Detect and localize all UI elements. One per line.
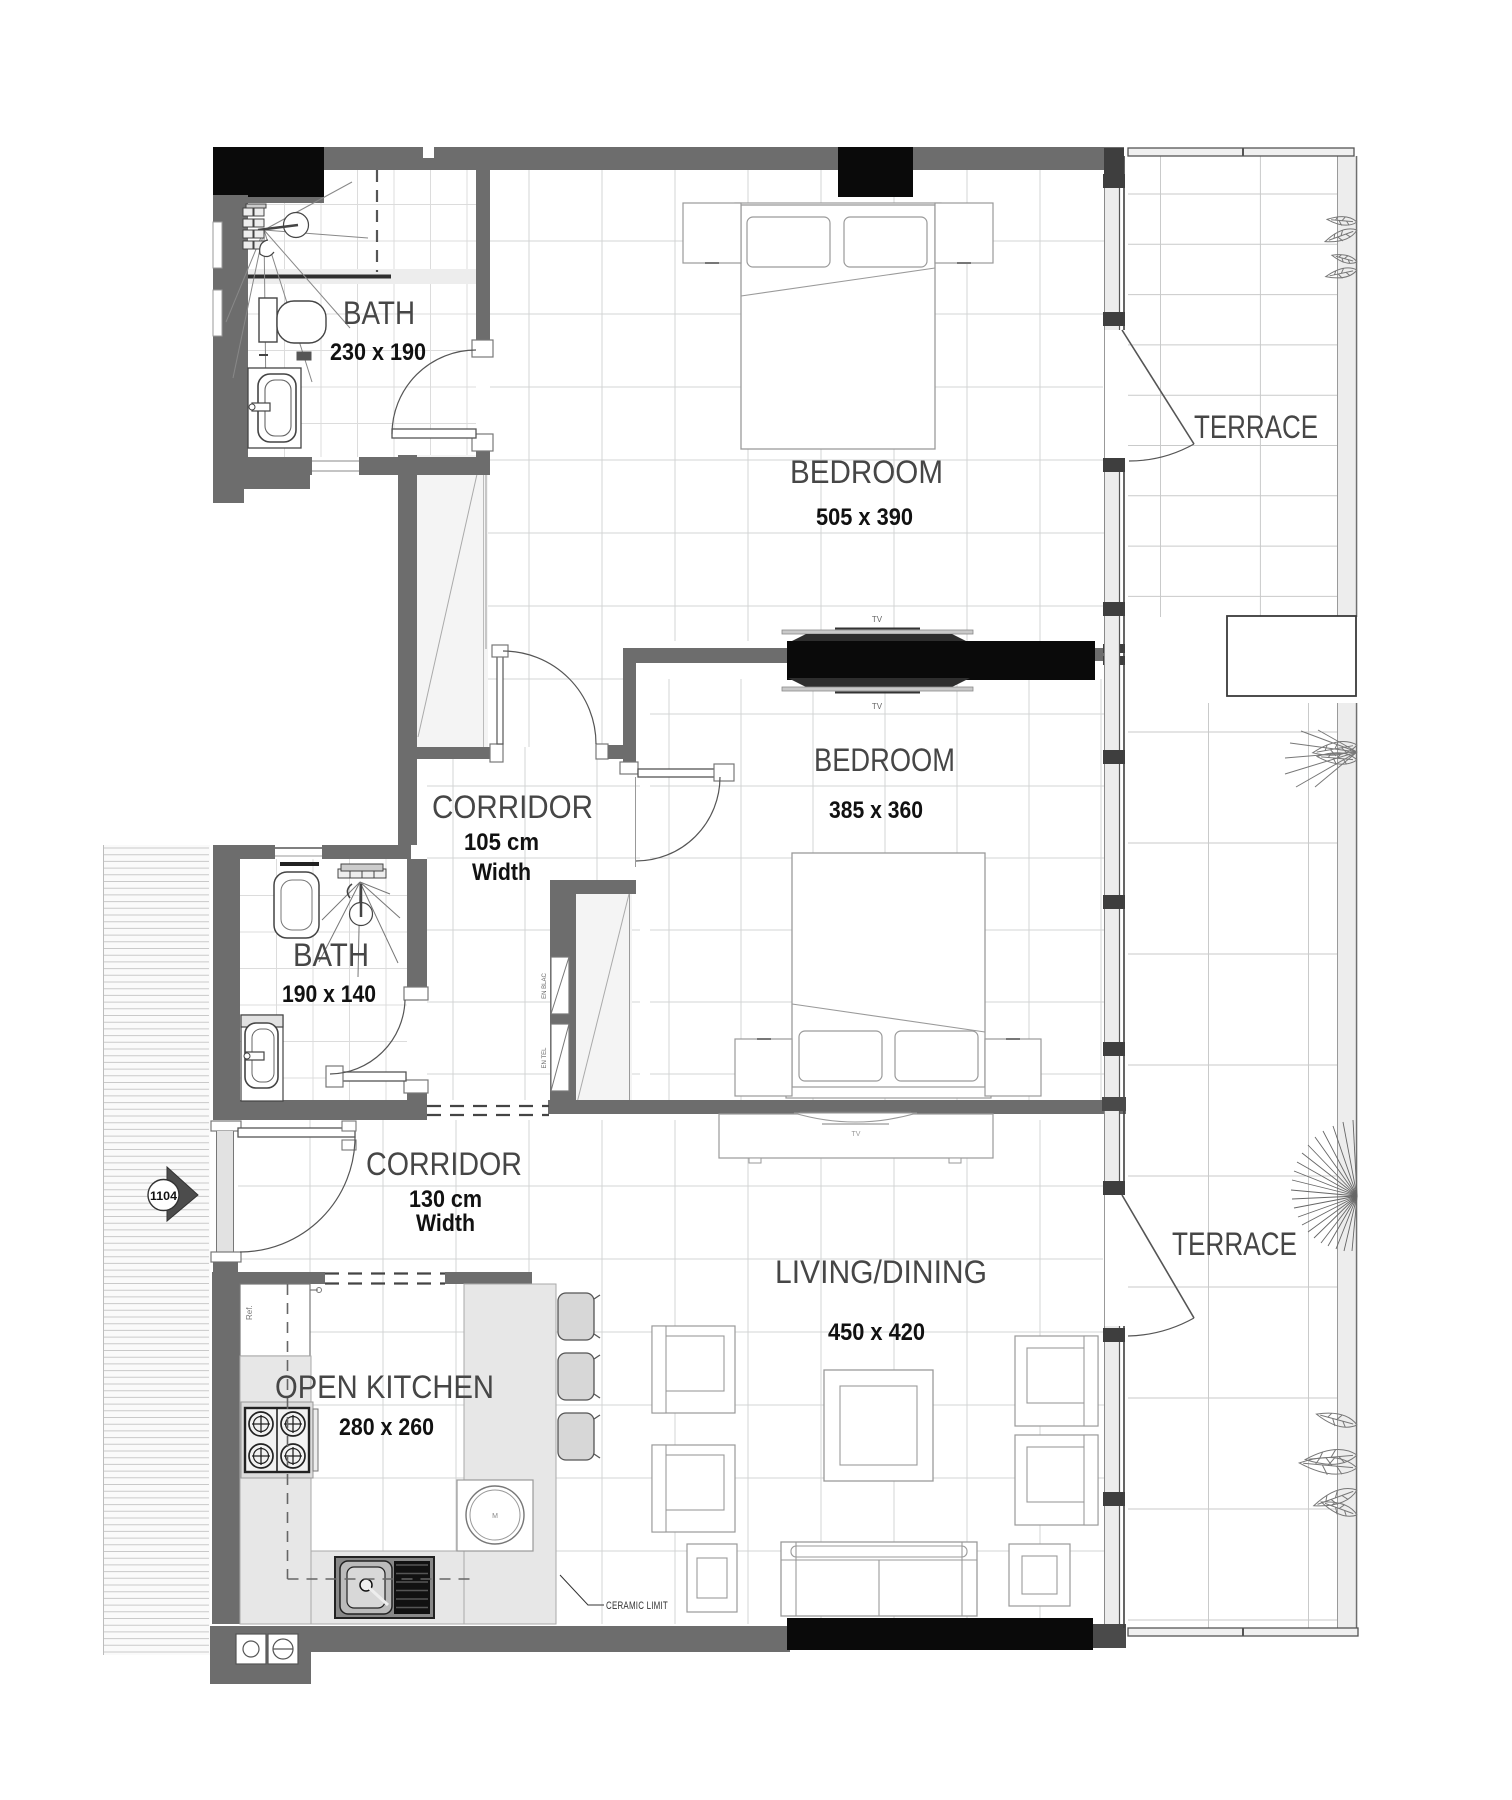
svg-text:230 x 190: 230 x 190 — [330, 339, 426, 366]
svg-text:TV: TV — [872, 702, 883, 711]
svg-text:TERRACE: TERRACE — [1194, 409, 1318, 445]
svg-text:TERRACE: TERRACE — [1172, 1226, 1297, 1262]
svg-text:BEDROOM: BEDROOM — [814, 742, 955, 778]
svg-text:CORRIDOR: CORRIDOR — [432, 789, 593, 825]
svg-text:CERAMIC LIMIT: CERAMIC LIMIT — [606, 1600, 668, 1612]
svg-text:1104: 1104 — [150, 1189, 177, 1203]
svg-text:BATH: BATH — [293, 937, 369, 973]
svg-text:BEDROOM: BEDROOM — [790, 454, 943, 490]
svg-text:Width: Width — [416, 1210, 475, 1237]
svg-text:OPEN KITCHEN: OPEN KITCHEN — [275, 1369, 494, 1405]
svg-text:505 x 390: 505 x 390 — [816, 504, 913, 531]
svg-text:BATH: BATH — [343, 295, 415, 331]
svg-text:190 x 140: 190 x 140 — [282, 981, 376, 1008]
svg-text:TV: TV — [852, 1131, 861, 1138]
svg-text:LIVING/DINING: LIVING/DINING — [775, 1254, 987, 1290]
svg-text:Ref.: Ref. — [245, 1305, 254, 1320]
svg-text:M: M — [492, 1513, 498, 1520]
svg-text:TV: TV — [872, 615, 883, 624]
svg-text:450 x 420: 450 x 420 — [828, 1319, 925, 1346]
svg-text:Width: Width — [472, 859, 531, 886]
svg-text:CORRIDOR: CORRIDOR — [366, 1146, 522, 1182]
svg-text:105 cm: 105 cm — [464, 829, 539, 856]
svg-text:130 cm: 130 cm — [409, 1186, 482, 1213]
svg-text:EN BLAC: EN BLAC — [542, 973, 548, 999]
svg-text:EN TEL: EN TEL — [542, 1047, 548, 1069]
svg-text:280 x 260: 280 x 260 — [339, 1414, 434, 1441]
svg-text:385 x 360: 385 x 360 — [829, 797, 923, 824]
